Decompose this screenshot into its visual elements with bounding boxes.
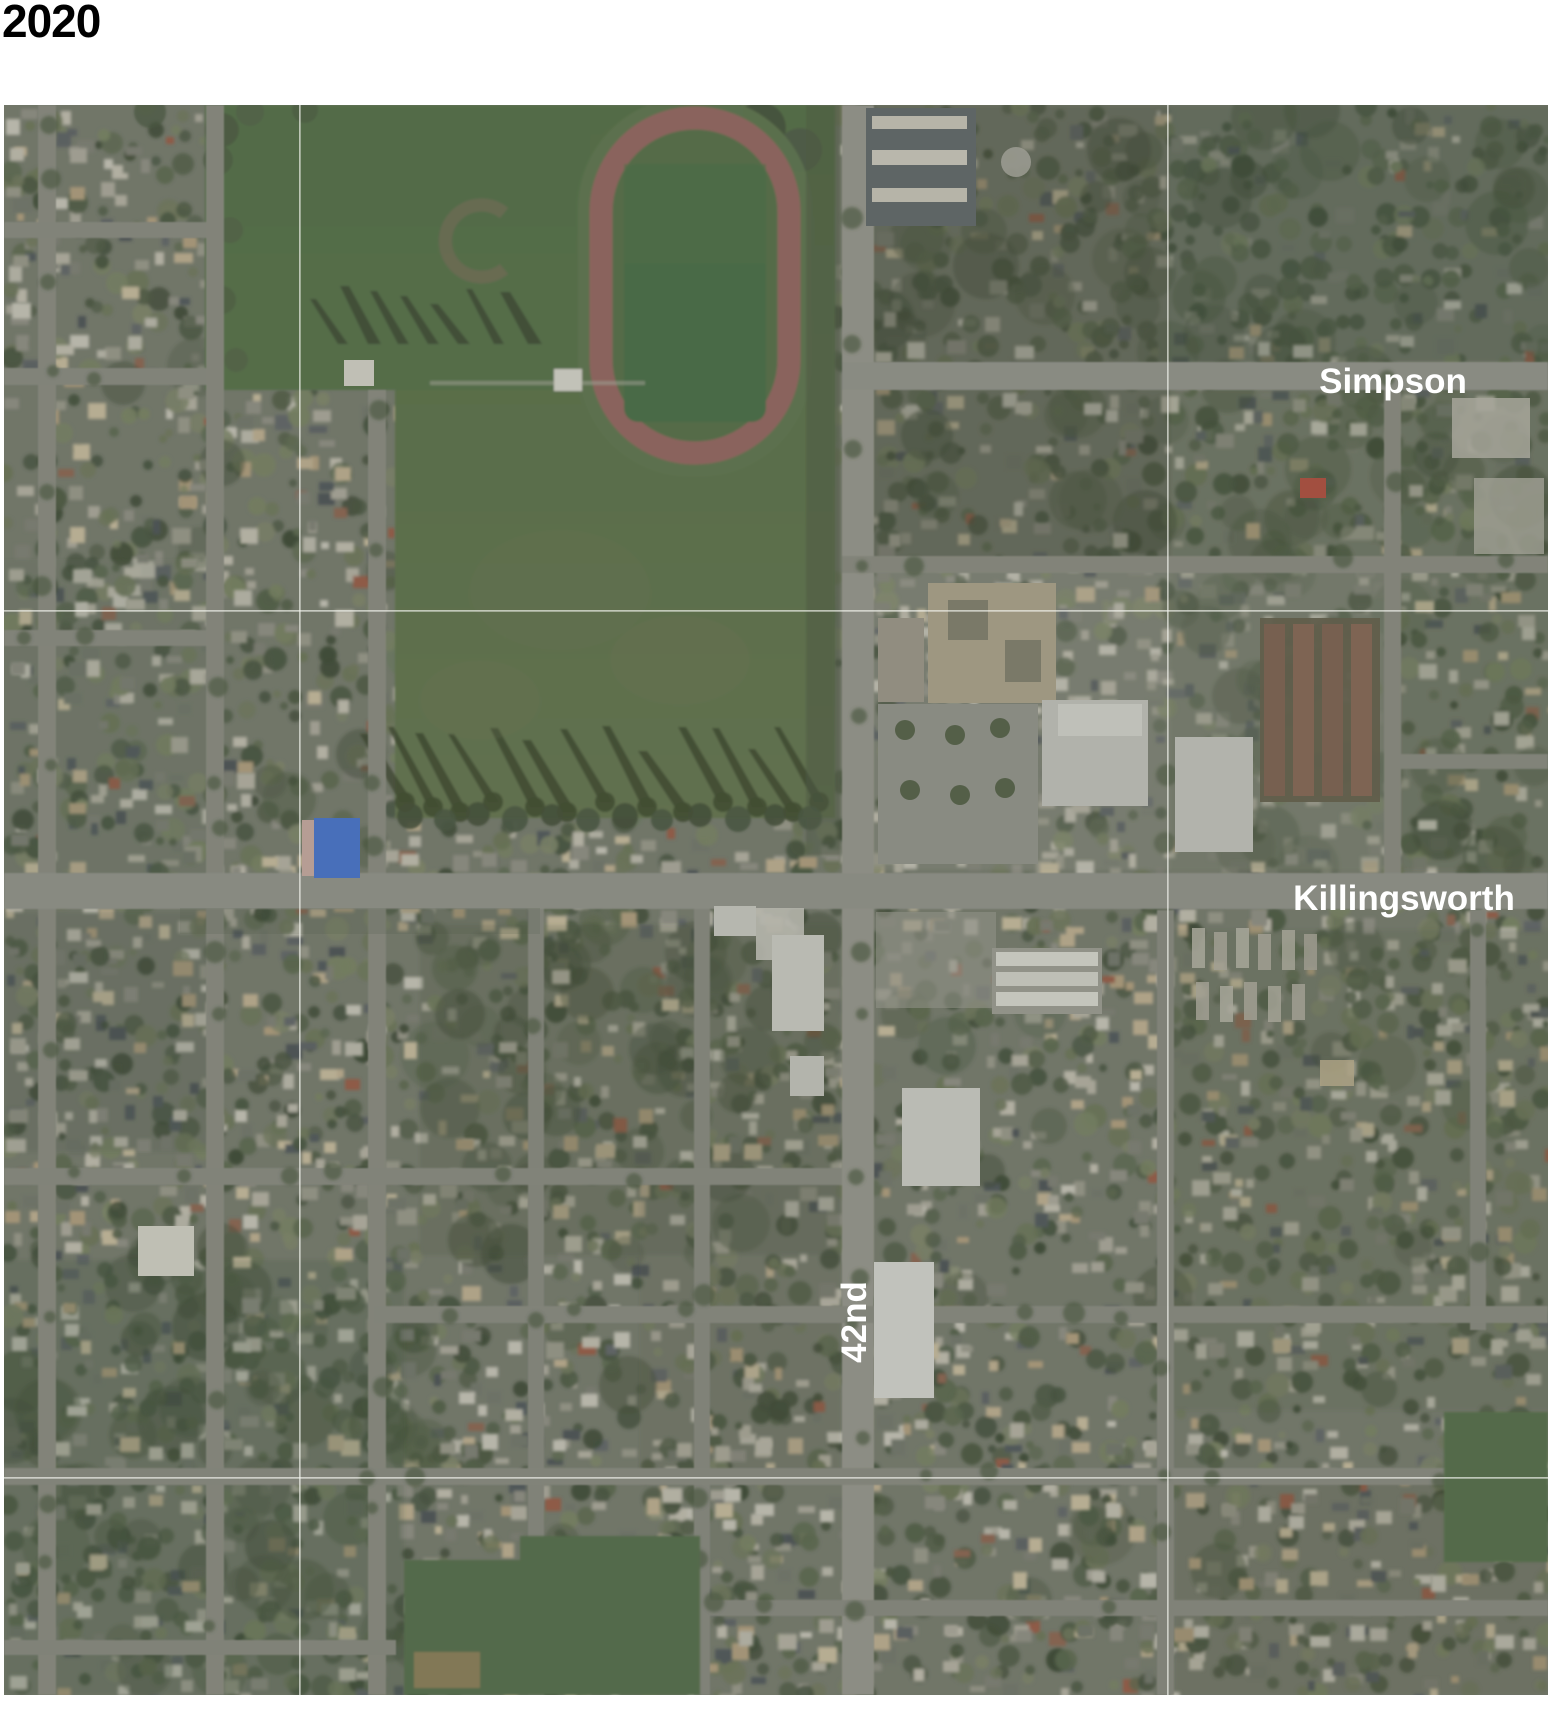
svg-text:2020: 2020: [2, 0, 100, 47]
